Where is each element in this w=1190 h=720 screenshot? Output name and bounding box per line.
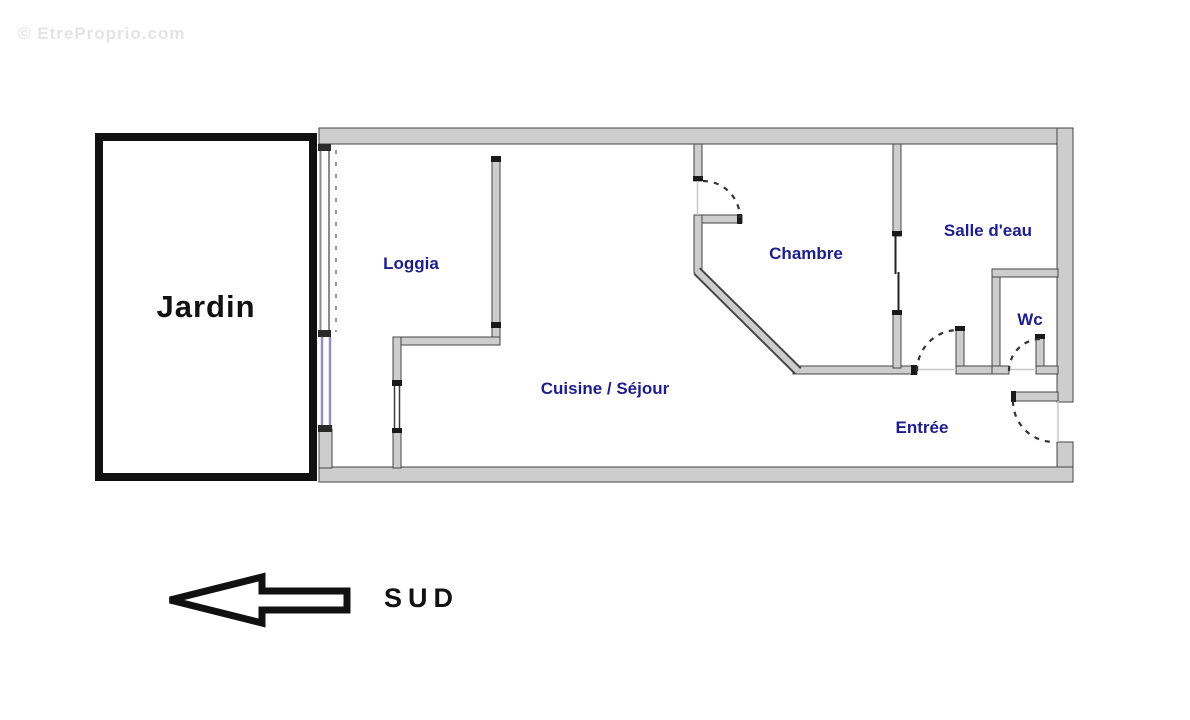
bottom-wall-piece [956, 366, 993, 374]
wall-left-lower [319, 429, 332, 468]
south-label: SUD [384, 583, 459, 614]
floor-plan-page: © EtreProprio.com [0, 0, 1190, 720]
chambre-diagonal-wall [697, 271, 798, 371]
wall-bottom [319, 467, 1073, 482]
wall-cap [318, 330, 331, 337]
strip-wall-window [395, 386, 400, 429]
strip-wall-lower [393, 431, 401, 468]
strip-wall-upper [393, 337, 401, 385]
divider-wall-lower [893, 313, 901, 368]
divider-wall-thin-section [896, 236, 899, 313]
loggia-right-wall [492, 158, 500, 343]
room-label-salle-deau: Salle d'eau [944, 221, 1032, 241]
wall-top [319, 128, 1073, 144]
salledeau-door-arc [917, 330, 958, 371]
jardin-area: Jardin [95, 133, 317, 481]
divider-wall-upper [893, 144, 901, 236]
left-facade [318, 144, 336, 432]
entrance-door-arc [1013, 401, 1054, 442]
chambre-left-wall-lower [694, 215, 702, 273]
wc-bottom-right-piece [1036, 366, 1058, 374]
wall-cap [318, 425, 332, 432]
jardin-label: Jardin [156, 289, 255, 325]
chambre-door-arc [703, 181, 740, 218]
room-label-cuisine-sejour: Cuisine / Séjour [541, 379, 669, 399]
entrance-door-stub [1012, 392, 1058, 401]
wc-top-wall [992, 269, 1058, 277]
loggia-bottom-wall [393, 337, 500, 345]
room-label-entree: Entrée [896, 418, 949, 438]
chambre-left-wall-upper [694, 144, 702, 181]
wc-left-wall [992, 270, 1000, 374]
wc-bottom-left-piece [992, 366, 1009, 374]
room-label-chambre: Chambre [769, 244, 843, 264]
room-label-loggia: Loggia [383, 254, 439, 274]
wall-right-upper [1057, 128, 1073, 402]
wall-cap [318, 144, 331, 151]
south-arrow-icon [170, 577, 347, 623]
room-label-wc: Wc [1017, 310, 1043, 330]
